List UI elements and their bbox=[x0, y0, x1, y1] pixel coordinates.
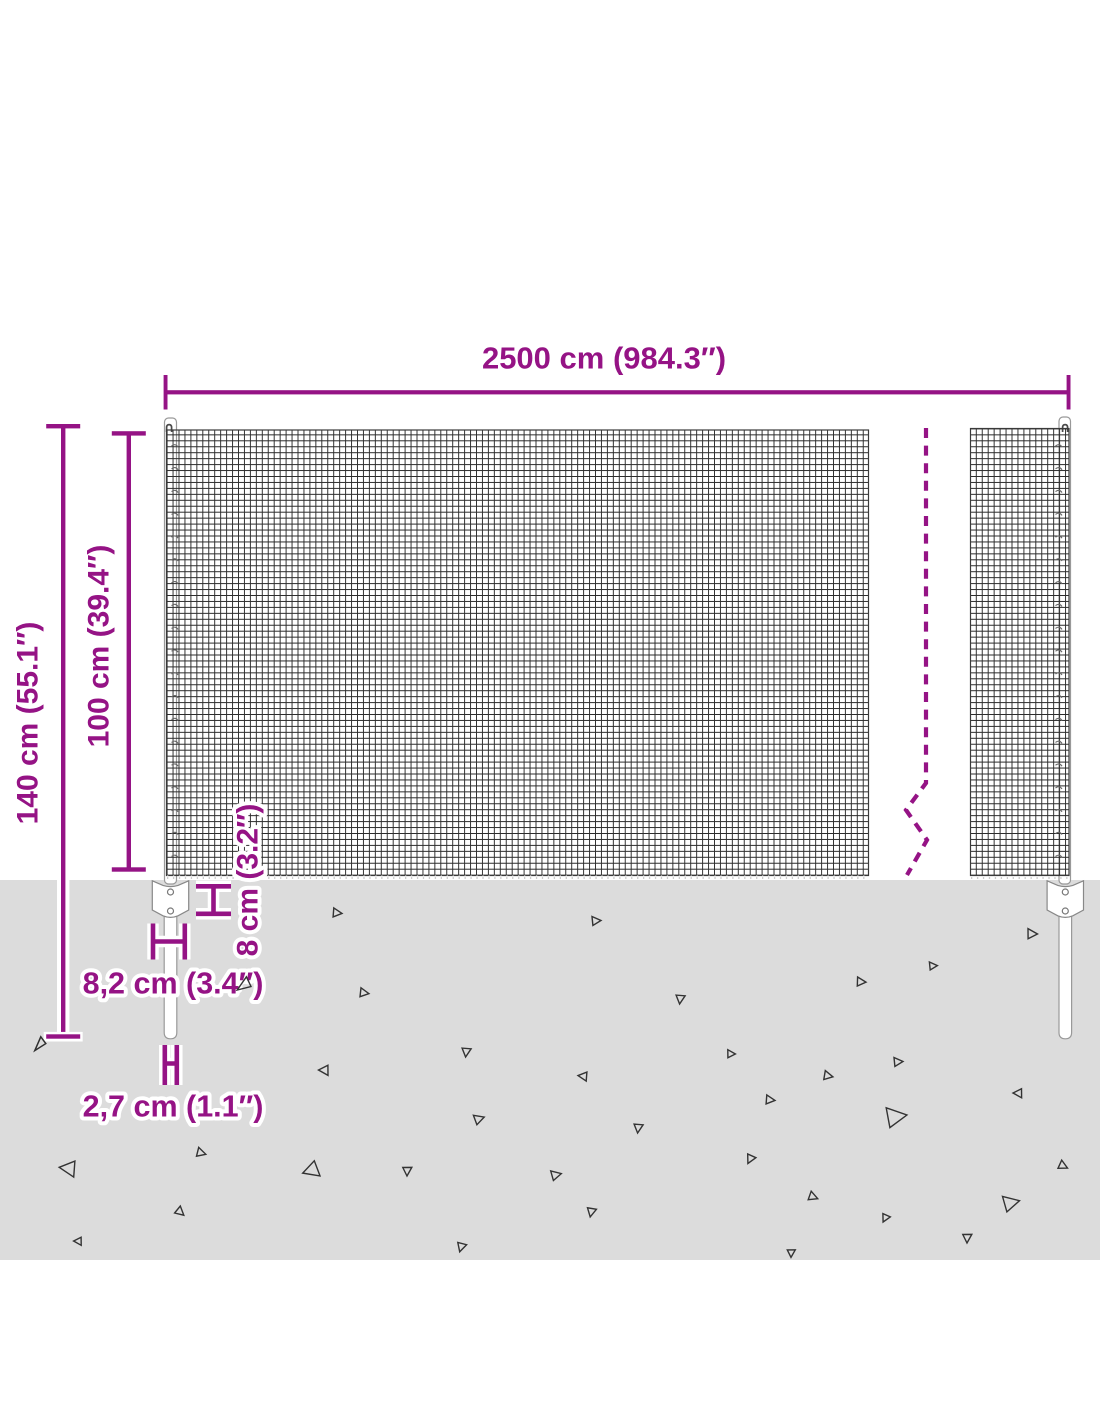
svg-text:8,2 cm (3.4″): 8,2 cm (3.4″) bbox=[83, 967, 264, 1001]
svg-text:100 cm (39.4″): 100 cm (39.4″) bbox=[83, 545, 116, 748]
svg-text:140 cm (55.1″): 140 cm (55.1″) bbox=[12, 622, 45, 825]
svg-text:2500 cm (984.3″): 2500 cm (984.3″) bbox=[482, 341, 726, 376]
svg-text:8 cm (3.2″): 8 cm (3.2″) bbox=[232, 804, 265, 957]
svg-text:2,7 cm (1.1″): 2,7 cm (1.1″) bbox=[83, 1090, 264, 1124]
